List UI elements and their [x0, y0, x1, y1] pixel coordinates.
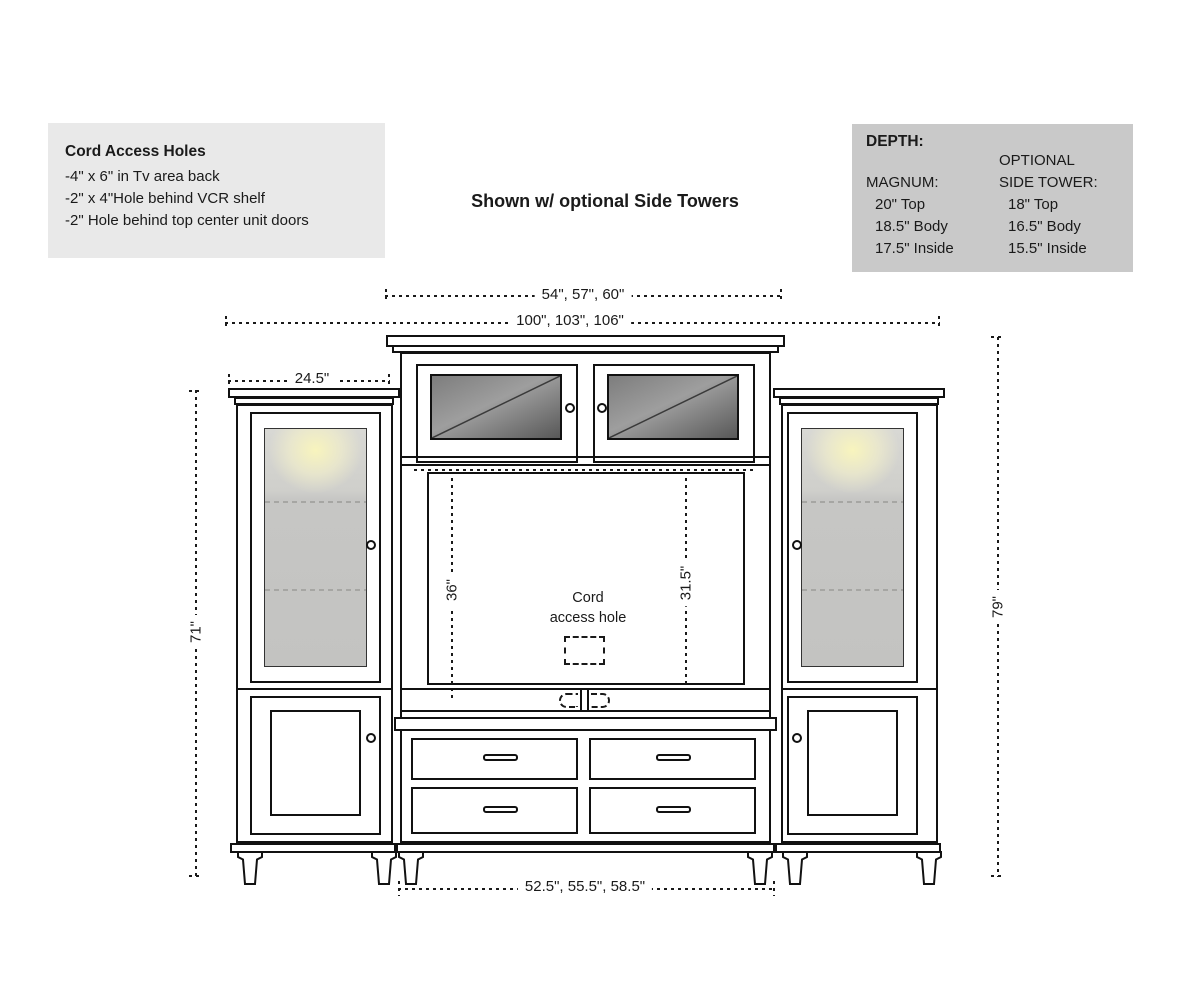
dim-tick — [189, 875, 202, 877]
cord-access-hole-label: Cord access hole — [508, 588, 668, 628]
bridge-shelf-bottom-line — [402, 464, 769, 466]
drawer-handle — [656, 754, 691, 761]
side-tower-header-2: SIDE TOWER: — [999, 172, 1129, 194]
drawer-handle — [656, 806, 691, 813]
notes-line-2: -2" x 4"Hole behind VCR shelf — [65, 188, 375, 210]
dim-label-center-width: 54", 57", 60" — [535, 286, 632, 303]
dim-label-tower-height: 71" — [188, 615, 205, 649]
glass-shelf-line — [802, 501, 903, 503]
bridge-shelf-top-line — [402, 456, 769, 458]
bridge-left-door-knob — [565, 403, 575, 413]
dim-tick — [385, 289, 387, 302]
dim-tick — [991, 336, 1004, 338]
center-foot-right — [747, 851, 773, 885]
dim-tick — [991, 875, 1004, 877]
right-tower-glass — [801, 428, 904, 667]
dim-label-base-width: 52.5", 55.5", 58.5" — [518, 878, 652, 895]
dim-tick — [388, 374, 390, 387]
dim-label-tv-height-alt: 31.5" — [678, 560, 695, 607]
depth-spec-box: DEPTH: MAGNUM: 20" Top 18.5" Body 17.5" … — [852, 124, 1133, 272]
dim-label-tv-height: 36" — [444, 573, 461, 607]
drawer-handle — [483, 806, 518, 813]
vcr-cord-hole-right — [591, 693, 610, 708]
hidden-shelf-dashed-line — [414, 469, 757, 471]
bridge-right-door-knob — [597, 403, 607, 413]
dim-tick — [938, 316, 940, 329]
dim-tick — [225, 316, 227, 329]
vcr-shelf-divider — [580, 690, 589, 710]
dim-label-overall-height: 79" — [990, 590, 1007, 624]
dim-tick — [228, 374, 230, 387]
right-tower-foot-left — [782, 851, 808, 885]
left-tower-mid-rail — [238, 688, 391, 690]
bridge-right-glass — [607, 374, 739, 440]
glass-reflection-line — [609, 376, 737, 438]
dim-label-tower-width: 24.5" — [288, 370, 337, 387]
left-tower-foot-right — [371, 851, 397, 885]
glass-shelf-line — [265, 501, 366, 503]
diagram-title: Shown w/ optional Side Towers — [440, 191, 770, 212]
glass-reflection-line — [432, 376, 560, 438]
magnum-row-2: 18.5" Body — [866, 216, 994, 238]
dim-tick — [773, 881, 775, 896]
cord-label-line-1: Cord — [508, 588, 668, 608]
bridge-left-glass — [430, 374, 562, 440]
notes-title: Cord Access Holes — [65, 143, 375, 161]
vcr-shelf-bottom-line — [402, 710, 769, 712]
notes-line-1: -4" x 6" in Tv area back — [65, 166, 375, 188]
left-tower-lower-door-knob — [366, 733, 376, 743]
side-tower-row-2: 16.5" Body — [999, 216, 1129, 238]
right-tower-foot-right — [916, 851, 942, 885]
right-tower-lower-door-panel — [807, 710, 898, 816]
center-foot-left — [398, 851, 424, 885]
drawer-handle — [483, 754, 518, 761]
center-mid-board — [394, 717, 777, 731]
notes-line-3: -2" Hole behind top center unit doors — [65, 210, 375, 232]
side-tower-row-1: 18" Top — [999, 194, 1129, 216]
dim-tick — [189, 390, 202, 392]
magnum-row-1: 20" Top — [866, 194, 994, 216]
cord-access-hole-outline — [564, 636, 605, 665]
center-plinth — [396, 843, 775, 853]
left-tower-glass — [264, 428, 367, 667]
glass-shelf-line — [802, 589, 903, 591]
cord-access-notes-box: Cord Access Holes -4" x 6" in Tv area ba… — [48, 123, 385, 258]
magnum-header: MAGNUM: — [866, 172, 994, 194]
depth-title: DEPTH: — [866, 133, 924, 151]
depth-column-magnum: MAGNUM: 20" Top 18.5" Body 17.5" Inside — [866, 172, 994, 260]
glass-shelf-line — [265, 589, 366, 591]
right-tower-mid-rail — [783, 688, 936, 690]
magnum-row-3: 17.5" Inside — [866, 238, 994, 260]
side-tower-row-3: 15.5" Inside — [999, 238, 1129, 260]
cord-label-line-2: access hole — [508, 608, 668, 628]
dim-label-overall-width: 100", 103", 106" — [509, 312, 631, 329]
left-tower-upper-door-knob — [366, 540, 376, 550]
side-tower-header-1: OPTIONAL — [999, 150, 1129, 172]
dim-tick — [780, 289, 782, 302]
depth-column-side-tower: OPTIONAL SIDE TOWER: 18" Top 16.5" Body … — [999, 150, 1129, 260]
vcr-cord-hole-left — [559, 693, 578, 708]
left-tower-foot-left — [237, 851, 263, 885]
left-tower-lower-door-panel — [270, 710, 361, 816]
furniture-dimension-diagram: Cord Access Holes -4" x 6" in Tv area ba… — [0, 0, 1200, 1000]
right-tower-upper-door-knob — [792, 540, 802, 550]
right-tower-lower-door-knob — [792, 733, 802, 743]
